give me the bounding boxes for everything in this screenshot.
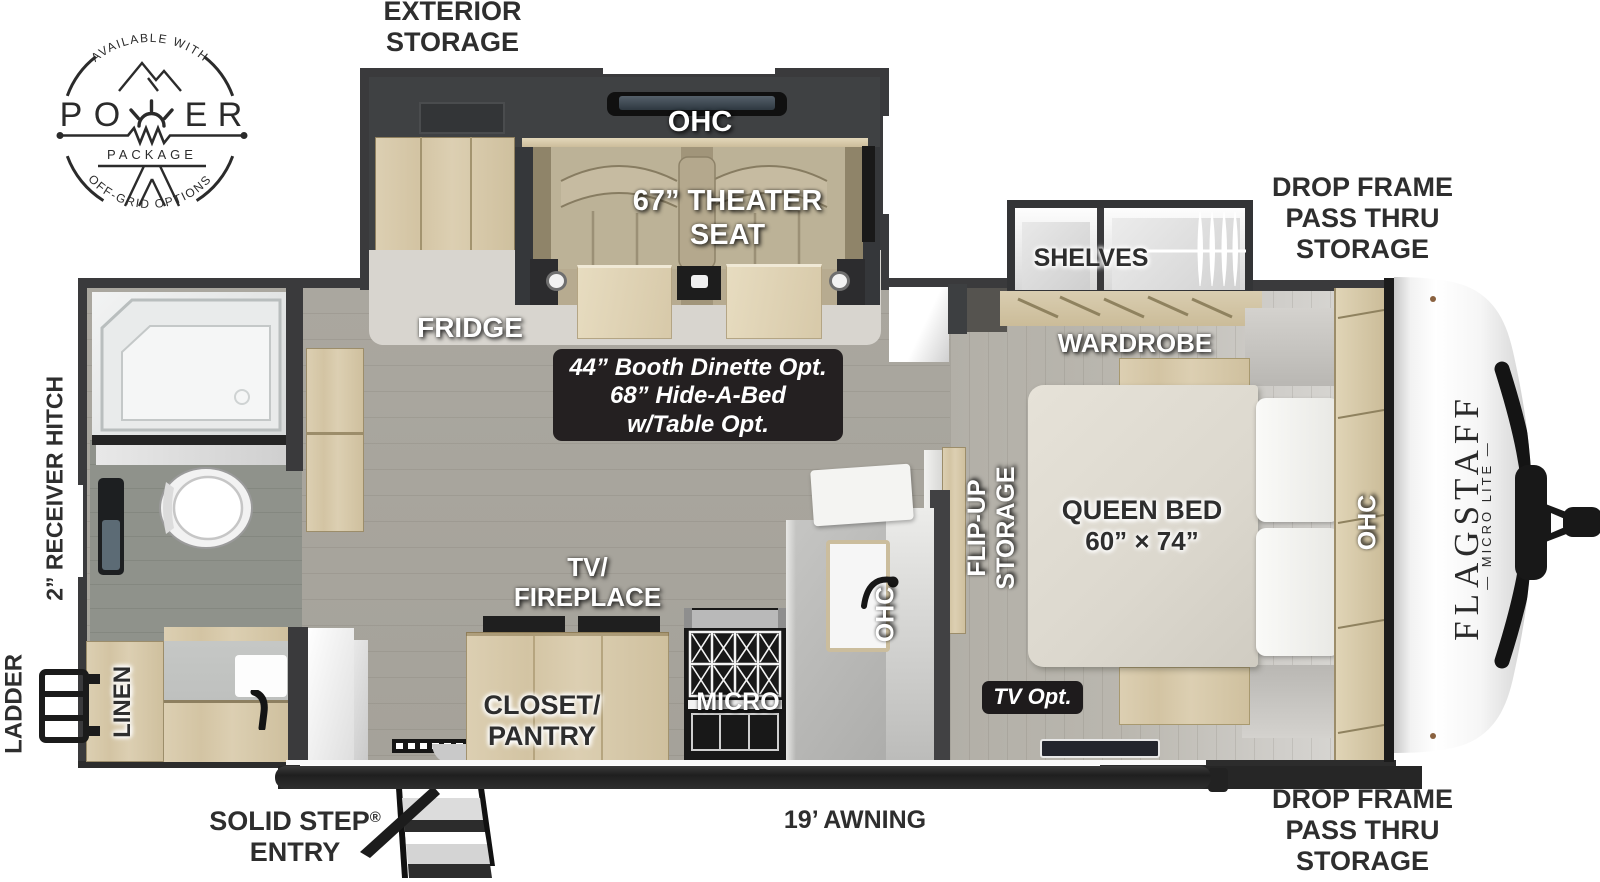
- svg-text:AVAILABLE WITH: AVAILABLE WITH: [88, 31, 211, 65]
- svg-text:— MICRO LITE —: — MICRO LITE —: [1479, 440, 1494, 590]
- svg-text:E: E: [185, 96, 208, 134]
- svg-text:P: P: [60, 96, 83, 134]
- svg-text:PACKAGE: PACKAGE: [107, 147, 197, 162]
- svg-text:R: R: [218, 96, 243, 134]
- svg-text:OFF-GRID OPTIONS: OFF-GRID OPTIONS: [86, 172, 215, 211]
- svg-text:O: O: [94, 96, 120, 134]
